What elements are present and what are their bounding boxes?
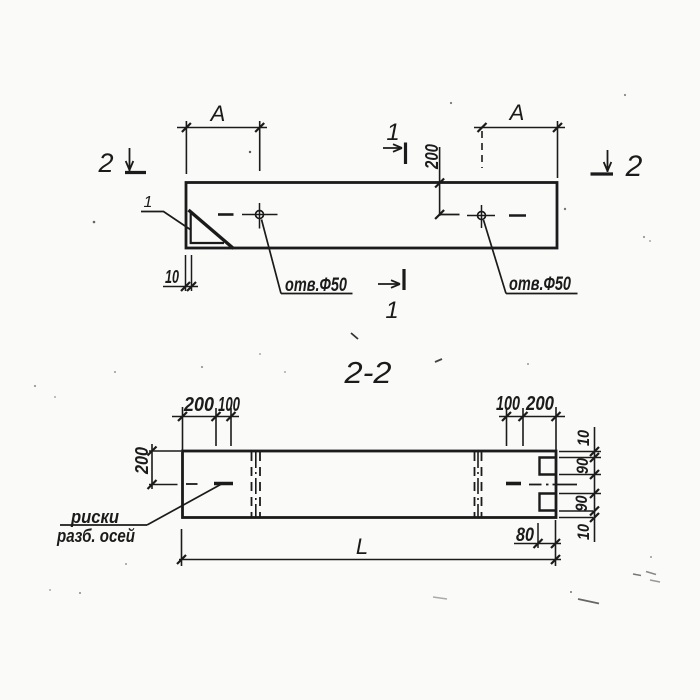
svg-text:2: 2 <box>625 150 643 183</box>
svg-text:A: A <box>508 100 525 125</box>
svg-text:200: 200 <box>422 144 442 170</box>
svg-text:L: L <box>356 534 368 559</box>
svg-text:2: 2 <box>97 148 113 178</box>
svg-text:разб. осей: разб. осей <box>56 526 135 546</box>
svg-text:100: 100 <box>218 394 240 416</box>
svg-text:1: 1 <box>144 194 153 211</box>
svg-text:10: 10 <box>165 267 179 287</box>
svg-text:10: 10 <box>574 430 593 446</box>
svg-text:90: 90 <box>572 495 591 511</box>
svg-text:200: 200 <box>132 447 152 475</box>
svg-text:2-2: 2-2 <box>343 355 391 390</box>
svg-text:1: 1 <box>386 119 399 146</box>
svg-text:1: 1 <box>385 297 398 324</box>
svg-text:A: A <box>209 101 226 126</box>
svg-text:отв.Ф50: отв.Ф50 <box>285 275 347 296</box>
svg-text:риски: риски <box>70 507 119 527</box>
svg-text:отв.Ф50: отв.Ф50 <box>509 274 571 295</box>
svg-text:80: 80 <box>516 525 534 546</box>
svg-text:100: 100 <box>496 393 520 415</box>
svg-text:200: 200 <box>183 394 214 416</box>
svg-text:90: 90 <box>573 458 592 474</box>
svg-text:200: 200 <box>525 393 554 415</box>
svg-text:10: 10 <box>574 524 593 540</box>
